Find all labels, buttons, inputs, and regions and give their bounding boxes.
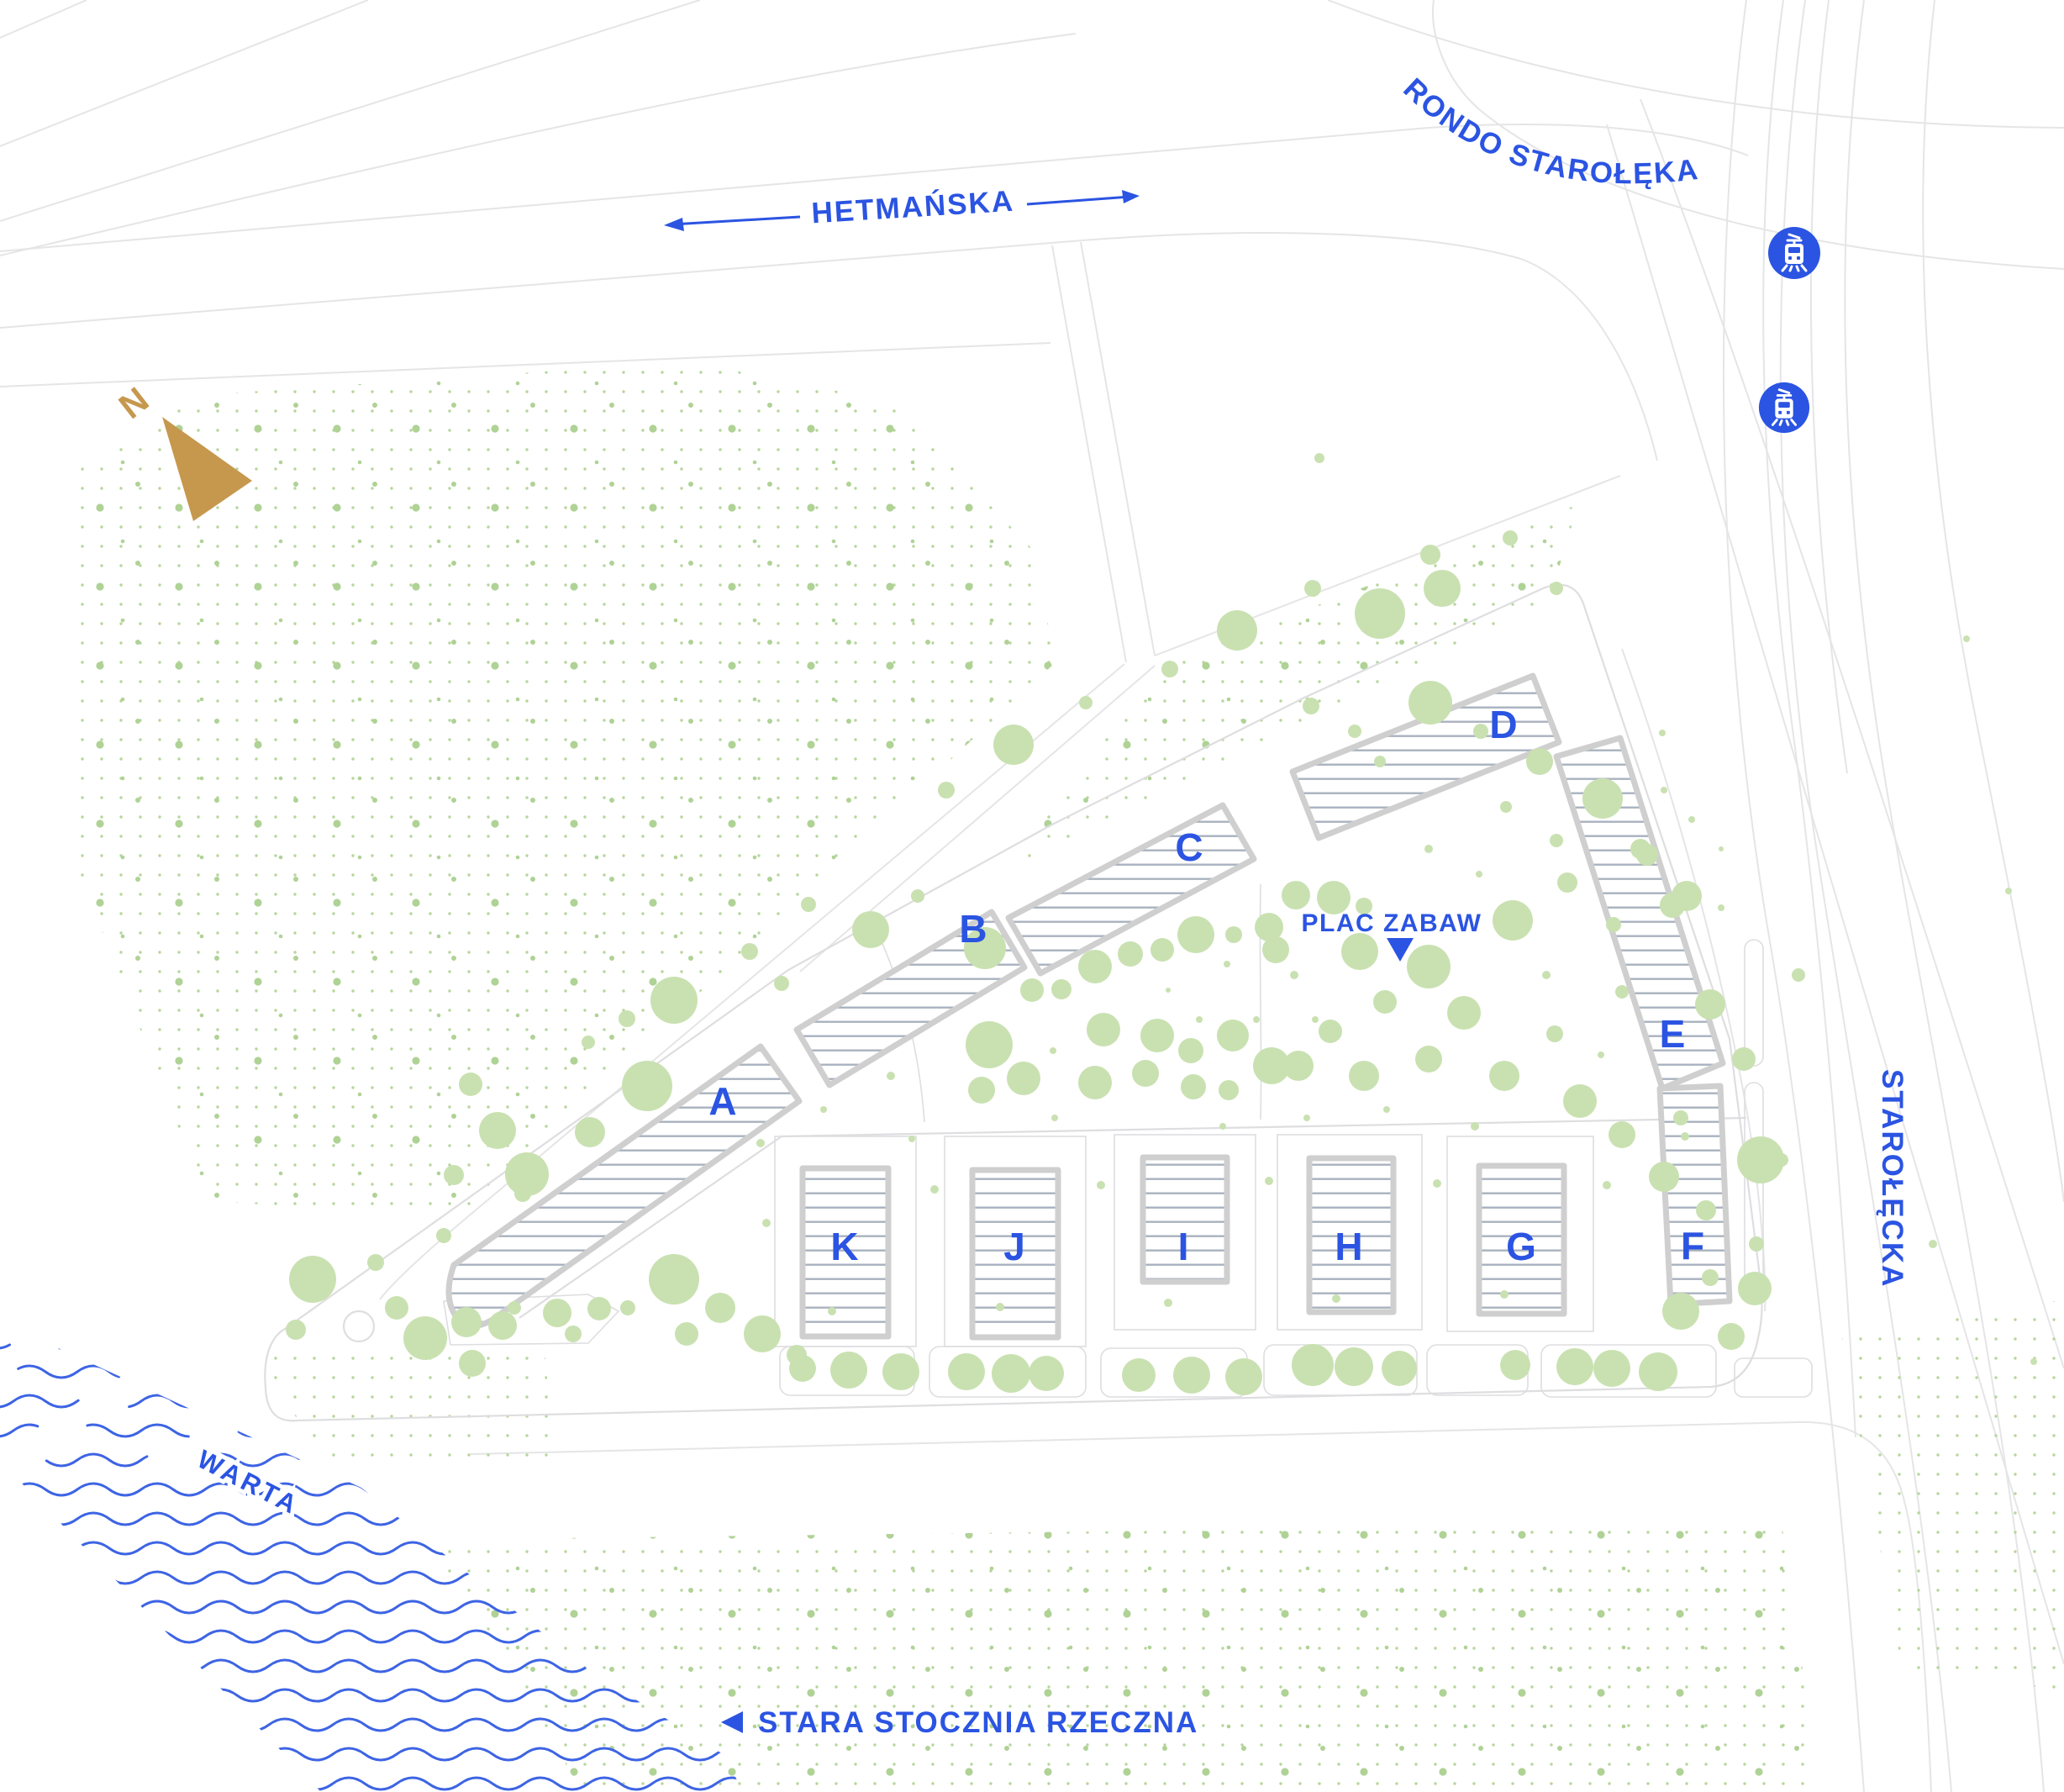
tree <box>575 1117 605 1147</box>
plac-zabaw-label: PLAC ZABAW <box>1302 909 1482 937</box>
tree <box>908 1136 915 1142</box>
tree <box>1489 1061 1519 1091</box>
tree <box>992 1354 1030 1393</box>
hetmanska-label: HETMAŃSKA <box>810 184 1015 230</box>
arrow-right-icon <box>1122 190 1140 203</box>
tree <box>1792 968 1805 982</box>
tree <box>966 1021 1013 1068</box>
tree <box>1473 724 1488 739</box>
tree <box>1424 570 1461 607</box>
vegetation-dot-areas <box>77 361 2064 1792</box>
tree <box>993 725 1034 765</box>
tree <box>1282 881 1310 909</box>
stara-stocznia-label-group: STARA STOCZNIA RZECZNA <box>721 1706 1198 1739</box>
tree <box>444 1165 464 1185</box>
tree <box>1051 979 1071 999</box>
tree <box>619 1010 635 1027</box>
building-f-footprint[interactable] <box>1660 1086 1730 1304</box>
tree <box>1029 1356 1064 1391</box>
tree <box>1253 1016 1260 1023</box>
tree <box>488 1311 517 1340</box>
tree <box>1563 1084 1597 1118</box>
tree <box>1382 1351 1417 1386</box>
tree <box>774 976 789 991</box>
hetmanska-street-label: HETMAŃSKA <box>664 184 1140 231</box>
roundabout <box>344 1311 374 1341</box>
rondo-staroleka-label: RONDO STAROŁĘKA <box>1397 72 1701 191</box>
tree <box>565 1326 582 1342</box>
tree <box>1609 1121 1635 1148</box>
tree <box>789 1355 816 1382</box>
building-e-footprint[interactable] <box>1556 738 1723 1088</box>
tree <box>756 1139 765 1147</box>
tree <box>762 1219 771 1227</box>
tree <box>1303 698 1319 714</box>
tree <box>1265 1177 1273 1185</box>
double-arrow <box>672 217 800 224</box>
tree <box>436 1228 451 1243</box>
tree <box>1348 725 1361 738</box>
tree <box>1097 1181 1105 1189</box>
tree <box>741 943 758 960</box>
building-label-c: C <box>1175 825 1203 869</box>
tree <box>1639 1352 1677 1391</box>
tree <box>1150 938 1174 962</box>
tree <box>1673 1110 1688 1125</box>
tree <box>1312 1016 1319 1023</box>
tree <box>852 911 889 948</box>
tree <box>1660 893 1685 918</box>
tree <box>459 1350 486 1377</box>
tree <box>1304 580 1321 597</box>
tree <box>887 1072 895 1080</box>
stara-stocznia-label: STARA STOCZNIA RZECZNA <box>758 1706 1198 1739</box>
tree <box>1696 1200 1716 1220</box>
tree <box>1636 844 1658 866</box>
tree <box>2030 1358 2037 1365</box>
tree <box>1219 1080 1239 1100</box>
tree <box>1407 945 1451 988</box>
tree <box>451 1307 482 1337</box>
tree <box>403 1316 447 1360</box>
tree <box>1500 1350 1530 1380</box>
tree <box>1051 1115 1058 1121</box>
tree <box>1615 985 1629 999</box>
tree <box>649 1254 699 1304</box>
tree <box>459 1073 482 1096</box>
tree <box>1181 1074 1206 1099</box>
tree <box>1225 1358 1262 1395</box>
building-label-e: E <box>1660 1012 1686 1056</box>
tree <box>1681 1132 1689 1141</box>
tree <box>1349 1061 1379 1091</box>
tree <box>1164 1299 1172 1307</box>
tree <box>1007 1062 1040 1095</box>
tree <box>1695 989 1725 1020</box>
tree <box>1556 1348 1593 1385</box>
tree <box>1140 1019 1174 1052</box>
tree <box>1020 978 1044 1002</box>
tree <box>830 1352 867 1389</box>
tree <box>1217 610 1257 651</box>
tree <box>828 1307 836 1315</box>
tree <box>1290 971 1298 979</box>
tree <box>1749 1236 1764 1252</box>
building-label-d: D <box>1489 703 1517 746</box>
tram-icon <box>1768 227 1820 279</box>
tree <box>1719 846 1724 851</box>
tree <box>1262 936 1289 963</box>
tree <box>1415 1046 1442 1073</box>
building-label-j: J <box>1003 1225 1025 1268</box>
tree <box>1550 834 1563 847</box>
tree <box>1649 1162 1679 1192</box>
tree <box>650 977 698 1024</box>
tree <box>1078 950 1112 983</box>
building-label-k: K <box>830 1225 858 1268</box>
tree <box>1224 961 1230 967</box>
tree <box>1166 988 1171 993</box>
tree <box>1718 1323 1745 1350</box>
building-label-f: F <box>1681 1224 1704 1268</box>
tree <box>1546 1025 1563 1042</box>
tree <box>1122 1358 1156 1392</box>
tree <box>1582 778 1623 819</box>
plac-zabaw-label-group: PLAC ZABAW <box>1302 909 1482 962</box>
tree <box>911 889 924 903</box>
tree <box>1963 635 1970 642</box>
tree <box>801 897 816 912</box>
tree <box>1173 1357 1210 1394</box>
tree <box>1283 1051 1314 1081</box>
building-label-g: G <box>1506 1225 1536 1268</box>
tree <box>1557 872 1577 893</box>
tree <box>289 1256 336 1303</box>
tree <box>479 1112 516 1149</box>
warta-label: WARTA <box>192 1444 304 1521</box>
tree <box>1196 1016 1203 1023</box>
tree <box>1503 530 1518 546</box>
tree <box>1420 545 1440 565</box>
tree <box>1550 582 1563 595</box>
tree <box>1332 1294 1340 1303</box>
tree <box>1659 730 1666 736</box>
starolecka-label: STAROŁĘCKA <box>1876 1069 1909 1288</box>
tree <box>930 1185 939 1194</box>
tree <box>1314 453 1324 463</box>
tree <box>1177 916 1214 953</box>
tree <box>820 1106 827 1113</box>
tree <box>367 1254 384 1271</box>
tree <box>543 1299 571 1327</box>
tree <box>1662 1293 1699 1330</box>
building-label-h: H <box>1335 1225 1362 1268</box>
tree <box>996 1303 1004 1311</box>
arrow-left-icon <box>664 218 684 231</box>
tree <box>948 1353 985 1390</box>
tree <box>1737 1136 1784 1183</box>
tree <box>1476 871 1482 878</box>
tree <box>882 1353 919 1390</box>
wave-line <box>0 1336 748 1348</box>
tree <box>508 1301 521 1315</box>
tree <box>1087 1013 1120 1046</box>
tree <box>1929 1240 1937 1248</box>
tree <box>1225 926 1242 943</box>
tree <box>1118 941 1143 967</box>
tree <box>675 1322 698 1346</box>
tree <box>622 1061 672 1111</box>
tree <box>1132 1060 1159 1087</box>
tree <box>1493 900 1533 941</box>
wave-line <box>0 1307 748 1319</box>
tree <box>1355 588 1405 639</box>
tree <box>1606 917 1621 932</box>
tree <box>1424 845 1433 853</box>
building-label-b: B <box>959 907 987 951</box>
tree <box>1335 1347 1373 1386</box>
tree <box>1050 1047 1056 1054</box>
tree <box>705 1293 735 1323</box>
north-label: N <box>112 379 156 426</box>
tree <box>1408 681 1452 725</box>
wave-line <box>0 1513 748 1525</box>
tree <box>1303 1115 1310 1121</box>
tree <box>1526 748 1553 775</box>
tree <box>744 1315 781 1352</box>
tree <box>582 1036 595 1049</box>
tree <box>505 1152 549 1196</box>
tree <box>1341 933 1378 970</box>
tree <box>938 782 955 798</box>
tree <box>1374 756 1386 767</box>
building-label-i: I <box>1178 1225 1189 1268</box>
tree <box>286 1320 306 1340</box>
tree <box>1079 696 1093 709</box>
tree <box>1500 1290 1509 1299</box>
wave-line <box>0 1484 748 1495</box>
tree <box>2005 888 2012 894</box>
tree <box>968 1077 995 1104</box>
tram-icon <box>1759 382 1809 433</box>
tree <box>1161 661 1178 677</box>
svg-text:RONDO STAROŁĘKA: RONDO STAROŁĘKA <box>1397 72 1701 191</box>
tree <box>1433 1179 1441 1188</box>
tree <box>1598 1051 1604 1058</box>
tree <box>1383 1106 1390 1113</box>
tree <box>1688 816 1695 823</box>
tree <box>1593 1350 1630 1387</box>
tree <box>1219 1123 1226 1130</box>
site-plan-map: A B C D E F G H I J K HETMAŃSKA RONDO ST… <box>0 0 2064 1792</box>
tree <box>1292 1344 1334 1386</box>
building-label-a: A <box>708 1079 736 1123</box>
tree <box>1702 1269 1719 1286</box>
tree <box>1319 1020 1342 1043</box>
tree <box>1732 1047 1756 1071</box>
tree <box>385 1296 408 1320</box>
tree <box>620 1300 635 1315</box>
tree <box>587 1297 611 1320</box>
tree <box>1447 996 1481 1030</box>
tree <box>1661 787 1667 793</box>
tree <box>1542 971 1551 979</box>
tree <box>1471 1122 1479 1131</box>
tree <box>1718 904 1724 911</box>
tree <box>1603 1181 1611 1189</box>
tree <box>1738 1272 1772 1305</box>
tree <box>1500 801 1512 813</box>
tree <box>1373 990 1397 1014</box>
tree <box>1217 1020 1249 1051</box>
tree <box>1078 1066 1112 1099</box>
tree <box>1178 1038 1203 1063</box>
